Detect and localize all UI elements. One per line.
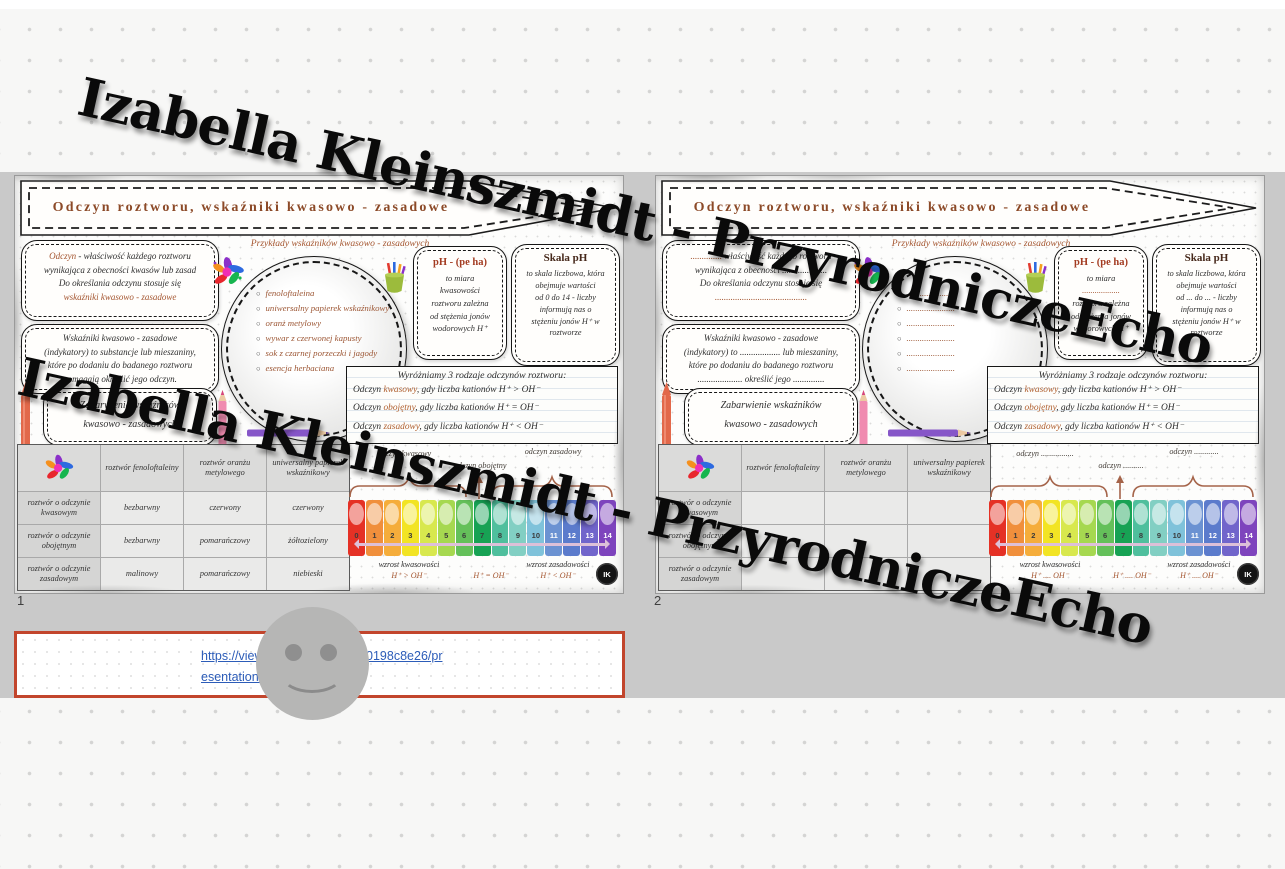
purple-pencil-icon [888, 428, 972, 438]
ph-segment: 9 [1150, 500, 1167, 556]
ph-segment: 5 [438, 500, 455, 556]
ph-color-strip: 0 1 2 3 4 5 6 7 8 9 10 11 12 13 14 [989, 500, 1257, 556]
example-item: oranż metylowy [256, 318, 394, 330]
reaction-type-row: Odczyn obojętny, gdy liczba kationów H⁺ … [994, 399, 1252, 417]
ph-segment: 13 [1222, 500, 1239, 556]
table-header: roztwór oranżu metylowego [825, 445, 907, 491]
ph-segment: 7 [1115, 500, 1132, 556]
scale-double-arrow [999, 543, 1247, 546]
basicity-growth-label: wzrost zasadowościH⁺ < OH⁻ [508, 559, 608, 581]
table-corner-cell [18, 445, 100, 491]
basicity-growth-label: wzrost zasadowościH⁺ .... OH⁻ [1149, 559, 1249, 581]
table-cell: bezbarwny [101, 525, 183, 557]
table-cell: malinowy [101, 558, 183, 590]
table-header: roztwór fenoloftaleiny [101, 445, 183, 491]
ph-segment: 10 [1168, 500, 1185, 556]
ph-segment: 2 [1025, 500, 1042, 556]
document-preview-page: { "watermark": { "text": "Izabella Klein… [0, 0, 1285, 869]
table-header: uniwersalny papierek wskaźnikowy [908, 445, 990, 491]
example-item: uniwersalny papierek wskaźnikowy [256, 303, 394, 315]
ph-segment: 3 [402, 500, 419, 556]
ph-segment: 6 [456, 500, 473, 556]
ph-scale-label: odczyn .......... [1079, 461, 1163, 470]
reaction-type-row: Odczyn kwasowy, gdy liczba kationów H⁺ >… [353, 381, 611, 399]
example-item: wywar z czerwonej kapusty [256, 333, 394, 345]
ph-segment: 5 [1079, 500, 1096, 556]
table-cell: czerwony [184, 492, 266, 524]
acidity-growth-label: wzrost kwasowościH⁺ > OH⁻ [354, 559, 464, 581]
reaction-type-row: Odczyn zasadowy, gdy liczba kationów H⁺ … [994, 418, 1252, 436]
example-item: sok z czarnej porzeczki i jagody [256, 348, 394, 360]
reaction-type-row: Odczyn obojętny, gdy liczba kationów H⁺ … [353, 399, 611, 417]
example-item: fenoloftaleina [256, 288, 394, 300]
scale-braces [987, 472, 1259, 500]
ph-scale-definition-box: Skala pH to skala liczbowa, która obejmu… [511, 244, 620, 366]
ph-definition-box: pH - (pe ha) to miara kwasowości roztwor… [413, 246, 507, 360]
definition-box: Odczyn - właściwość każdego roztworu wyn… [21, 240, 219, 321]
table-cell: pomarańczowy [184, 525, 266, 557]
table-header: roztwór fenoloftaleiny [742, 445, 824, 491]
paint-splat-icon [209, 256, 247, 288]
paint-splat-icon [683, 453, 717, 483]
ph-segment: 4 [1061, 500, 1078, 556]
slide-number-2: 2 [654, 593, 661, 608]
top-white-strip [0, 0, 1285, 9]
table-cell [825, 492, 907, 524]
table-cell: bezbarwny [101, 492, 183, 524]
table-cell: pomarańczowy [184, 558, 266, 590]
table-corner-cell [659, 445, 741, 491]
indicators-box: Wskaźniki kwasowo - zasadowe (indykatory… [662, 324, 860, 394]
ph-segment: 3 [1043, 500, 1060, 556]
pink-pencil-icon [858, 390, 869, 450]
smiley-face-watermark [256, 607, 369, 720]
table-cell [908, 492, 990, 524]
ph-segment: 1 [366, 500, 383, 556]
ph-segment: 8 [1133, 500, 1150, 556]
table-cell: czerwony [267, 492, 349, 524]
ph-segment: 4 [420, 500, 437, 556]
table-cell: żółtozielony [267, 525, 349, 557]
ik-logo: IK [596, 563, 618, 585]
definition-lead: Odczyn [49, 251, 76, 261]
table-cell: niebieski [267, 558, 349, 590]
table-row-label: roztwór o odczynie kwasowym [18, 492, 100, 524]
slide-number-1: 1 [17, 593, 24, 608]
reaction-types-box: Wyróżniamy 3 rodzaje odczynów roztworu: … [987, 366, 1259, 444]
ph-segment: 6 [1097, 500, 1114, 556]
pencil-cup-icon [379, 262, 409, 294]
example-item: ...................... [897, 348, 1035, 360]
ph-segment: 11 [1186, 500, 1203, 556]
table-row-label: roztwór o odczynie obojętnym [18, 525, 100, 557]
ph-segment: 1 [1007, 500, 1024, 556]
ph-scale-label: odczyn ............ [1139, 447, 1249, 456]
paint-splat-icon [42, 453, 76, 483]
scale-double-arrow [358, 543, 606, 546]
ik-logo: IK [1237, 563, 1259, 585]
ph-segment: 2 [384, 500, 401, 556]
ph-segment: 12 [1204, 500, 1221, 556]
smiley-mouth [281, 657, 343, 693]
coloring-box: Zabarwienie wskaźników kwasowo - zasadow… [684, 388, 858, 446]
reaction-type-row: Odczyn kwasowy, gdy liczba kationów H⁺ >… [994, 381, 1252, 399]
table-row-label: roztwór o odczynie zasadowym [18, 558, 100, 590]
ph-scale-label: odczyn ................ [993, 449, 1097, 458]
